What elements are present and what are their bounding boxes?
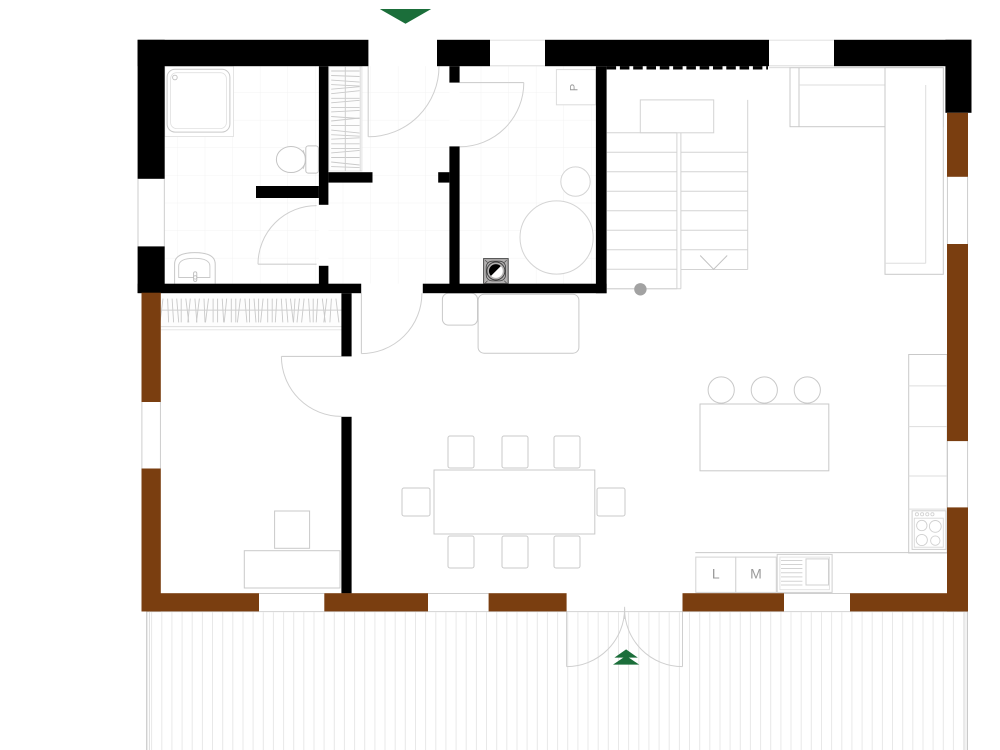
svg-text:M: M	[750, 566, 762, 582]
svg-text:P: P	[568, 84, 580, 91]
svg-text:L: L	[712, 566, 720, 582]
